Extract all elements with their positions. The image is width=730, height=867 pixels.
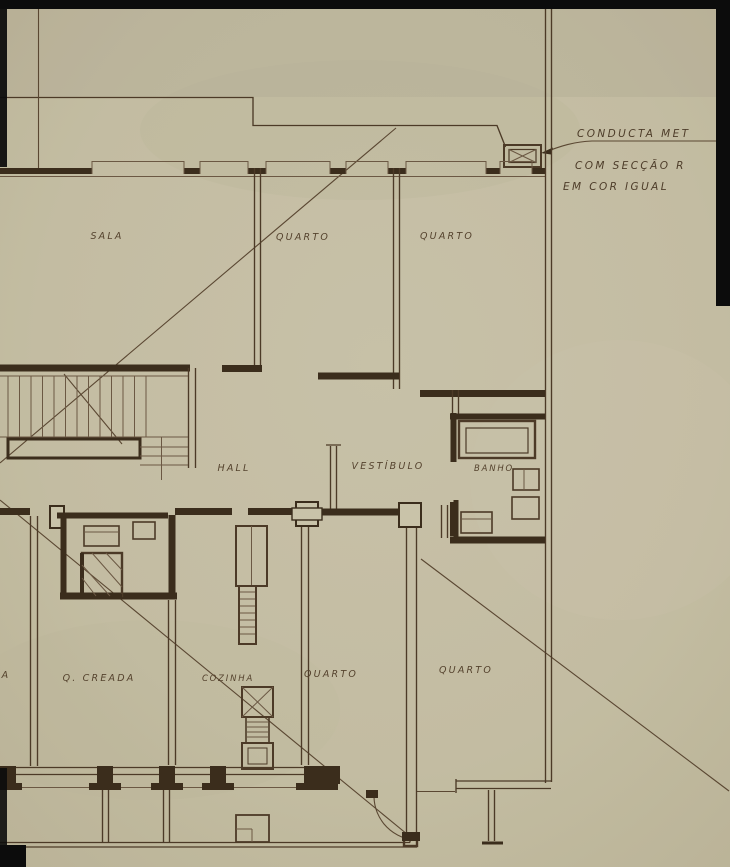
label-banho: BANHO <box>474 464 514 474</box>
label-cozinha: COZINHA <box>202 674 254 684</box>
annotation-line3: EM COR IGUAL <box>563 181 669 193</box>
label-hall: HALL <box>217 463 250 474</box>
label-vestibulo: VESTÍBULO <box>352 460 425 472</box>
label-quarto-top-right: QUARTO <box>420 231 474 242</box>
label-edge-fragment: A <box>1 670 11 681</box>
label-quarto-bottom-left: QUARTO <box>304 669 358 680</box>
label-quarto-top-left: QUARTO <box>276 232 330 243</box>
label-q-creada: Q. CREADA <box>63 673 136 684</box>
floor-plan-svg: SALA QUARTO QUARTO HALL VESTÍBULO BANHO … <box>0 0 730 867</box>
scanned-floor-plan: SALA QUARTO QUARTO HALL VESTÍBULO BANHO … <box>0 0 730 867</box>
annotation-line1: CONDUCTA MET <box>577 128 690 140</box>
scan-edge-top <box>0 0 730 9</box>
scan-edge-right <box>716 0 730 306</box>
label-sala: SALA <box>90 231 123 242</box>
annotation-line2: COM SECÇÃO R <box>575 159 686 172</box>
label-quarto-bottom-right: QUARTO <box>439 665 493 676</box>
scan-edge-left-top <box>0 9 7 167</box>
scan-edge-corner <box>0 845 26 867</box>
